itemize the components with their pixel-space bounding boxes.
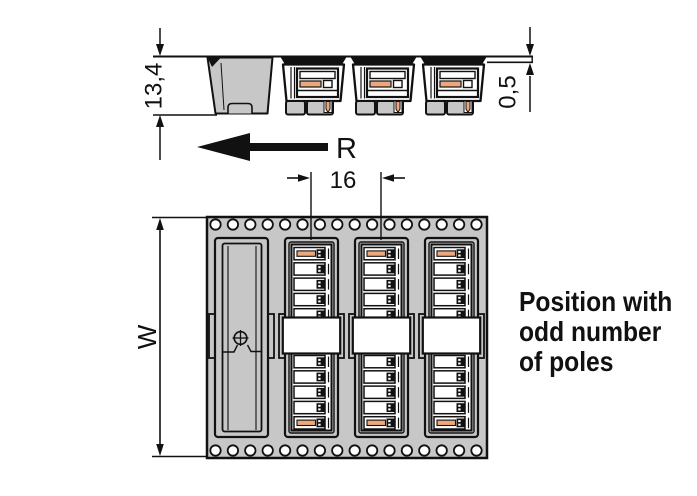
sprocket-hole	[280, 219, 290, 229]
clamp-notch	[458, 390, 460, 392]
dim-arrowhead	[298, 174, 310, 182]
clamp-notch	[388, 374, 390, 376]
solder-pin	[466, 102, 470, 113]
sprocket-hole	[402, 219, 412, 229]
clamp-notch	[458, 420, 460, 422]
clamp-notch	[388, 266, 390, 268]
dim-tape-thickness-label: 0,5	[494, 75, 521, 108]
clamp-notch	[388, 420, 390, 422]
clamp-detail	[457, 403, 466, 412]
solder-pin	[326, 102, 330, 113]
connector-cells	[283, 242, 480, 433]
sprocket-hole	[402, 445, 412, 455]
sprocket-hole	[228, 219, 238, 229]
clamp-detail	[457, 419, 466, 428]
clamp-notch	[458, 285, 460, 287]
clamp-notch	[388, 297, 390, 299]
clamp-detail	[317, 249, 326, 258]
solder-pin	[396, 102, 400, 113]
clamp-notch	[458, 282, 460, 284]
clamp-detail	[317, 388, 326, 397]
sprocket-hole	[471, 445, 481, 455]
dim-tape-width-label: W	[132, 324, 162, 349]
actuation-lever-side	[300, 81, 321, 87]
clamp-detail	[457, 295, 466, 304]
clamp-detail	[317, 373, 326, 382]
clamp-notch	[458, 424, 460, 426]
sprocket-hole	[315, 219, 325, 229]
clamp-detail	[317, 295, 326, 304]
clamp-notch	[458, 363, 460, 365]
caption-line: odd number	[519, 317, 672, 347]
cage-top-slot	[440, 72, 475, 79]
sprocket-hole	[245, 445, 255, 455]
cage-latch	[464, 81, 473, 88]
clamp-detail	[387, 280, 396, 289]
dim-tape-thickness: 0,5	[494, 27, 534, 112]
dim-arrowhead	[156, 44, 164, 56]
sprocket-hole	[437, 445, 447, 455]
arrow-shaft	[250, 143, 328, 151]
technical-drawing: 13,4 0,5 R	[0, 0, 697, 496]
cage-latch	[394, 81, 403, 88]
actuation-lever	[367, 420, 386, 425]
dim-arrowhead	[156, 444, 164, 456]
sprocket-hole	[419, 219, 429, 229]
sprocket-hole	[384, 445, 394, 455]
cage-top-slot	[300, 72, 335, 79]
caption-line: of poles	[519, 347, 672, 377]
sprocket-hole	[437, 219, 447, 229]
sprocket-hole	[228, 445, 238, 455]
cage-latch	[324, 81, 333, 88]
center-cover-plate	[423, 318, 480, 354]
clamp-detail	[387, 295, 396, 304]
clamp-notch	[388, 408, 390, 410]
center-cover-plate	[353, 318, 410, 354]
sprocket-hole	[332, 445, 342, 455]
clamp-notch	[388, 424, 390, 426]
cage-top-slot	[370, 72, 405, 79]
clamp-notch	[458, 251, 460, 253]
dim-arrowhead	[526, 63, 534, 75]
center-cover-plate	[283, 318, 340, 354]
actuation-lever	[437, 420, 456, 425]
sprocket-hole	[384, 219, 394, 229]
clamp-notch	[458, 393, 460, 395]
sprocket-hole	[454, 445, 464, 455]
clamp-notch	[318, 378, 320, 380]
unreeling-direction-arrow: R	[197, 133, 357, 165]
clamp-notch	[458, 378, 460, 380]
caption-position-note: Position with odd number of poles	[519, 287, 672, 377]
clamp-notch	[318, 282, 320, 284]
clamp-detail	[317, 357, 326, 366]
dim-height: 13,4	[140, 28, 167, 160]
dim-tape-width: W	[132, 218, 207, 457]
clamp-notch	[388, 359, 390, 361]
sprocket-hole	[471, 219, 481, 229]
clamp-notch	[388, 393, 390, 395]
clamp-notch	[318, 374, 320, 376]
sprocket-hole	[454, 219, 464, 229]
pocket-foot	[286, 101, 305, 115]
clamp-notch	[388, 255, 390, 257]
clamp-notch	[458, 374, 460, 376]
clamp-detail	[457, 373, 466, 382]
dim-arrowhead	[382, 174, 394, 182]
connector-tape-drawing: 13,4 0,5 R	[0, 0, 697, 496]
clamp-notch	[318, 297, 320, 299]
clamp-detail	[457, 265, 466, 274]
actuation-lever	[297, 420, 316, 425]
actuation-lever	[437, 251, 456, 256]
clamp-notch	[318, 255, 320, 257]
clamp-notch	[318, 270, 320, 272]
clamp-detail	[387, 373, 396, 382]
clamp-detail	[457, 249, 466, 258]
arrow-head-icon	[197, 133, 250, 161]
clamp-detail	[387, 419, 396, 428]
clamp-detail	[387, 265, 396, 274]
sprocket-hole	[263, 219, 273, 229]
dim-arrowhead	[156, 115, 164, 127]
sprocket-hole	[419, 445, 429, 455]
clamp-notch	[458, 405, 460, 407]
clamp-detail	[457, 357, 466, 366]
clamp-notch	[318, 285, 320, 287]
clamp-notch	[458, 312, 460, 314]
clamp-detail	[387, 403, 396, 412]
clamp-notch	[318, 393, 320, 395]
clamp-notch	[318, 251, 320, 253]
clamp-notch	[458, 408, 460, 410]
clamp-detail	[317, 419, 326, 428]
clamp-notch	[388, 405, 390, 407]
clamp-detail	[387, 388, 396, 397]
clamp-notch	[388, 285, 390, 287]
clamp-notch	[458, 300, 460, 302]
clamp-notch	[318, 300, 320, 302]
sprocket-hole	[367, 219, 377, 229]
clamp-notch	[318, 408, 320, 410]
dim-arrowhead	[156, 218, 164, 230]
actuation-lever-side	[440, 81, 461, 87]
sprocket-hole	[280, 445, 290, 455]
clamp-notch	[458, 297, 460, 299]
dim-arrowhead	[526, 44, 534, 56]
clamp-notch	[458, 255, 460, 257]
clamp-notch	[318, 359, 320, 361]
clamp-notch	[318, 363, 320, 365]
clamp-notch	[388, 363, 390, 365]
unreeling-direction-label: R	[336, 133, 357, 165]
sprocket-hole	[350, 445, 360, 455]
clamp-notch	[458, 359, 460, 361]
clamp-notch	[388, 300, 390, 302]
clamp-notch	[318, 405, 320, 407]
clamp-notch	[318, 312, 320, 314]
clamp-notch	[458, 270, 460, 272]
clamp-detail	[387, 249, 396, 258]
clamp-detail	[457, 388, 466, 397]
clamp-notch	[388, 251, 390, 253]
dim-height-label: 13,4	[140, 63, 167, 110]
sprocket-hole	[350, 219, 360, 229]
clamp-detail	[317, 265, 326, 274]
clamp-notch	[388, 390, 390, 392]
side-view-connectors	[281, 57, 487, 115]
clamp-notch	[388, 282, 390, 284]
clamp-detail	[317, 280, 326, 289]
clamp-detail	[317, 403, 326, 412]
top-view: W	[132, 167, 487, 458]
side-view: 13,4 0,5 R	[140, 27, 534, 165]
clamp-notch	[388, 378, 390, 380]
caption-line: Position with	[519, 287, 672, 317]
dim-pocket-pitch-label: 16	[330, 167, 357, 194]
clamp-notch	[318, 424, 320, 426]
sprocket-hole	[263, 445, 273, 455]
pocket-bottom-notch	[228, 104, 252, 114]
clamp-notch	[318, 266, 320, 268]
actuation-lever-side	[370, 81, 391, 87]
sprocket-hole	[332, 219, 342, 229]
clamp-notch	[458, 266, 460, 268]
actuation-lever	[297, 251, 316, 256]
clamp-notch	[318, 420, 320, 422]
sprocket-hole	[210, 445, 220, 455]
actuation-lever	[367, 251, 386, 256]
pocket-foot	[426, 101, 445, 115]
sprocket-hole	[245, 219, 255, 229]
clamp-notch	[388, 270, 390, 272]
clamp-detail	[387, 357, 396, 366]
clamp-detail	[457, 280, 466, 289]
sprocket-hole	[367, 445, 377, 455]
pocket-foot	[356, 101, 375, 115]
sprocket-hole	[315, 445, 325, 455]
clamp-notch	[388, 312, 390, 314]
sprocket-hole	[210, 219, 220, 229]
clamp-notch	[318, 390, 320, 392]
sprocket-hole	[297, 445, 307, 455]
sprocket-hole	[297, 219, 307, 229]
